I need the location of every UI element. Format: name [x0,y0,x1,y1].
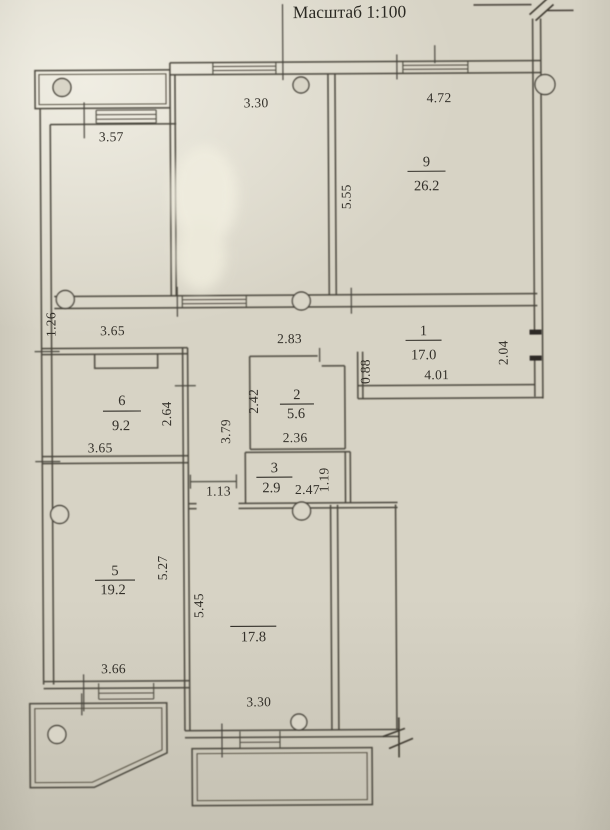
dimension-label: 0.88 [358,359,373,384]
room-number: 3 [271,460,278,476]
room-label-9: 9 26.2 [407,154,445,194]
room-number: 5 [111,563,118,579]
dimension-label: 3.65 [100,323,125,338]
plan-drawing [25,0,578,807]
room-area: 19.2 [100,582,125,598]
room-area: 26.2 [414,178,439,194]
room-label-1: 1 17.0 [405,323,441,363]
window-symbol [95,61,472,749]
floorplan-canvas: Масштаб 1:100 3.57 3.30 4.72 3.65 2.83 4… [0,0,610,830]
room-number: 9 [423,154,430,170]
dimension-label: 2.64 [159,401,174,426]
dimension-label: 1.26 [43,312,58,337]
vent-circle [293,77,309,93]
vent-circle [292,292,310,310]
vent-circle [48,725,66,743]
room-area: 17.8 [241,629,266,645]
dimension-label: 3.66 [101,661,126,676]
room-label-17-8: 17.8 [230,626,276,645]
dimension-label: 1.13 [206,483,231,498]
room-label-3: 3 2.9 [256,460,292,496]
room-area: 9.2 [112,418,130,434]
room-number: 6 [118,393,125,409]
room-label-2: 2 5.6 [280,387,314,422]
room-number: 2 [293,387,300,403]
dimension-label: 4.72 [427,90,452,105]
room-number: 1 [420,323,427,339]
scale-title: Масштаб 1:100 [293,1,407,22]
wall-break-symbol [473,0,573,21]
dimension-tick [32,3,439,758]
dimension-label: 2.04 [496,340,511,365]
scan-blur-artifact [171,145,238,290]
dimension-label: 5.45 [191,593,206,618]
dimension-label: 3.30 [246,694,271,709]
dimension-label: 5.55 [339,184,354,209]
scanned-floorplan-page: Масштаб 1:100 3.57 3.30 4.72 3.65 2.83 4… [0,0,610,830]
door-jamb [530,356,542,361]
dimension-label: 2.83 [277,331,302,346]
vent-circle [293,502,311,520]
dimension-label: 3.65 [88,440,113,455]
room-area: 17.0 [411,347,436,363]
dimension-label: 5.27 [155,555,170,580]
vent-circle [535,74,555,94]
dimension-label: 3.57 [99,129,124,144]
door-jamb [529,330,541,335]
vent-circle [56,290,74,308]
vent-circle [291,714,307,730]
dimension-label: 3.79 [218,419,233,444]
vent-circle [53,78,71,96]
dimension-label: 2.42 [246,389,261,414]
room-area: 2.9 [262,480,280,496]
vent-circle [51,505,69,523]
room-label-5: 5 19.2 [95,563,135,598]
room-label-6: 6 9.2 [103,393,141,434]
wall-break-symbol [383,717,413,757]
dimension-label: 4.01 [424,367,449,382]
dimension-label: 2.36 [283,430,308,445]
dimension-label: 3.30 [244,95,269,110]
room-area: 5.6 [287,406,305,422]
dimension-label: 1.19 [316,467,331,492]
